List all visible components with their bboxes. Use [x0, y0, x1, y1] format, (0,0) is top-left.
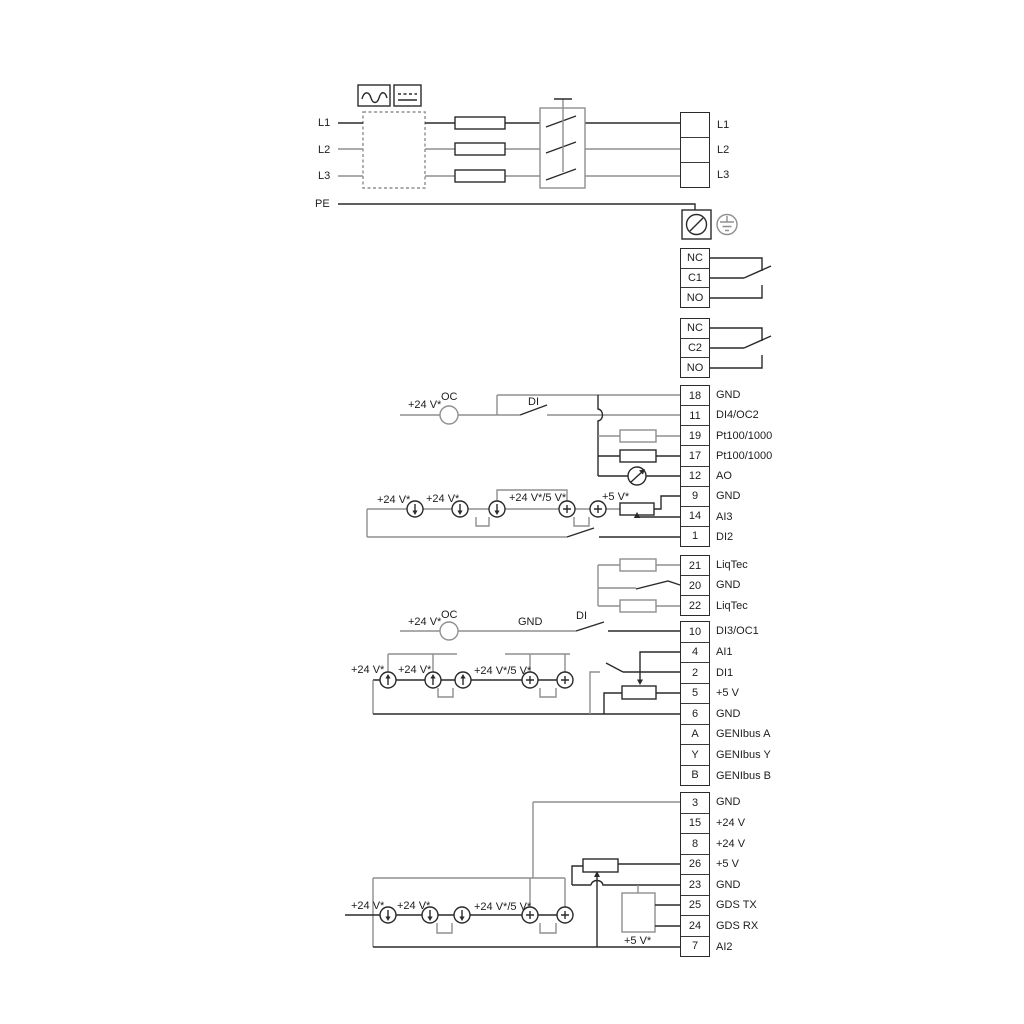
terminal-block-io2: 10 4 2 5 6 A Y B [680, 621, 710, 786]
terminal-label: L3 [717, 163, 729, 188]
terminal-label: AO [716, 466, 772, 486]
terminal-number: 4 [681, 642, 709, 663]
terminal-number: 19 [681, 425, 709, 445]
supply-label: +24 V* [351, 900, 384, 912]
terminal-number: 23 [681, 874, 709, 895]
terminal-number: NO [681, 287, 709, 307]
terminal-number: NO [681, 357, 709, 377]
terminal-number: 2 [681, 662, 709, 683]
terminal-label: GDS RX [716, 916, 758, 937]
terminal-label: Pt100/1000 [716, 446, 772, 466]
terminal-number: 6 [681, 703, 709, 724]
ground-label: GND [518, 616, 542, 628]
terminal-number: A [681, 724, 709, 745]
terminal-number: 8 [681, 833, 709, 854]
supply-label: +24 V* [397, 900, 430, 912]
terminal-number: 3 [681, 793, 709, 813]
supply-label: +24 V* [351, 664, 384, 676]
terminal-number: 12 [681, 466, 709, 486]
terminal-cell [681, 162, 709, 187]
terminal-label: GND [716, 792, 758, 813]
terminal-cell [681, 113, 709, 137]
digital-input-label: DI [576, 610, 587, 622]
cable-screw-terminal-icon [682, 210, 711, 239]
pt100-sensor [620, 430, 656, 442]
supply-label: +5 V* [624, 935, 651, 947]
terminal-number: 26 [681, 854, 709, 875]
terminal-block-io3: 3 15 8 26 23 25 24 7 [680, 792, 710, 957]
terminal-number: NC [681, 249, 709, 268]
terminal-label: L1 [717, 112, 729, 137]
terminal-number: 15 [681, 813, 709, 834]
earth-ground-icon [717, 215, 737, 235]
terminal-number: 25 [681, 895, 709, 916]
liqtec-sensor [620, 600, 656, 612]
terminal-number: 10 [681, 622, 709, 642]
potentiometer [622, 686, 656, 699]
input-label-l2: L2 [318, 144, 330, 156]
terminal-labels-io2: DI3/OC1 AI1 DI1 +5 V GND GENIbus A GENIb… [716, 621, 771, 786]
di2-switch [567, 528, 594, 537]
terminal-label: GND [716, 486, 772, 506]
terminal-number: 7 [681, 936, 709, 957]
terminal-block-mains-out [680, 112, 710, 188]
terminal-number: 14 [681, 506, 709, 526]
terminal-label: GENIbus A [716, 724, 771, 745]
liqtec-circuit [598, 559, 680, 612]
digital-input-label: DI [528, 396, 539, 408]
dc-symbol-icon [394, 85, 421, 106]
terminal-number: C2 [681, 338, 709, 358]
fuse [455, 143, 505, 155]
supply-label: +24 V* [377, 494, 410, 506]
terminal-block-relay1: NC C1 NO [680, 248, 710, 308]
open-collector-icon [440, 622, 458, 640]
terminal-labels-liqtec: LiqTec GND LiqTec [716, 555, 748, 616]
supply-label: +24 V* [408, 616, 441, 628]
terminal-block-liqtec: 21 20 22 [680, 555, 710, 616]
terminal-number: B [681, 765, 709, 786]
supply-label: +24 V*/5 V* [474, 665, 531, 677]
di1-switch [606, 663, 623, 672]
di-switch [576, 622, 604, 631]
terminal-number: 24 [681, 915, 709, 936]
fuse [455, 117, 505, 129]
terminal-label: L2 [717, 137, 729, 162]
input-label-l1: L1 [318, 117, 330, 129]
input-label-l3: L3 [318, 170, 330, 182]
supply-label: +5 V* [602, 491, 629, 503]
terminal-number: 9 [681, 486, 709, 506]
terminal-number: 17 [681, 445, 709, 465]
terminal-label: GND [716, 704, 771, 725]
terminal-label: AI3 [716, 507, 772, 527]
drive-filter-box [363, 112, 425, 188]
ai2-gds-circuit [345, 802, 680, 947]
terminal-label: Pt100/1000 [716, 426, 772, 446]
terminal-label: GDS TX [716, 895, 758, 916]
terminal-number: NC [681, 319, 709, 338]
terminal-label: LiqTec [716, 596, 748, 616]
terminal-label: AI2 [716, 936, 758, 957]
supply-label: +24 V*/5 V* [474, 901, 531, 913]
terminal-number: 21 [681, 556, 709, 575]
terminal-label: GENIbus Y [716, 745, 771, 766]
supply-label: +24 V*/5 V* [509, 492, 566, 504]
terminal-label: DI2 [716, 527, 772, 547]
open-collector-label: OC [441, 609, 458, 621]
fuse [455, 170, 505, 182]
mains-section [338, 85, 737, 239]
input-label-pe: PE [315, 198, 330, 210]
mains-switch [540, 99, 585, 188]
terminal-number: 20 [681, 575, 709, 595]
terminal-block-io1: 18 11 19 17 12 9 14 1 [680, 385, 710, 547]
terminal-label: +5 V [716, 683, 771, 704]
terminal-label: DI3/OC1 [716, 621, 771, 642]
open-collector-label: OC [441, 391, 458, 403]
supply-label: +24 V* [408, 399, 441, 411]
terminal-label: GND [716, 875, 758, 896]
terminal-label: +24 V [716, 833, 758, 854]
terminal-label: +5 V [716, 854, 758, 875]
potentiometer [583, 859, 618, 872]
terminal-number: C1 [681, 268, 709, 288]
terminal-labels-io1: GND DI4/OC2 Pt100/1000 Pt100/1000 AO GND… [716, 385, 772, 547]
terminal-label: AI1 [716, 642, 771, 663]
terminal-label: GND [716, 575, 748, 595]
terminal-block-relay2: NC C2 NO [680, 318, 710, 378]
terminal-cell [681, 137, 709, 162]
terminal-labels-io3: GND +24 V +24 V +5 V GND GDS TX GDS RX A… [716, 792, 758, 957]
terminal-label: GENIbus B [716, 765, 771, 786]
wiring-diagram-canvas [0, 0, 1024, 1024]
terminal-label: LiqTec [716, 555, 748, 575]
pt100-sensor [620, 450, 656, 462]
open-collector-icon [440, 406, 458, 424]
gds-sensor-box [622, 893, 655, 932]
terminal-number: 18 [681, 386, 709, 405]
terminal-number: Y [681, 744, 709, 765]
ai1-di1-circuit [373, 652, 680, 714]
terminal-label: +24 V [716, 813, 758, 834]
relay1-contact [710, 258, 771, 298]
terminal-number: 5 [681, 683, 709, 704]
wiring-diagram-page: L1 L2 L3 PE L1 L2 L3 NC C1 NO NC C2 NO 1… [0, 0, 1024, 1024]
supply-label: +24 V* [426, 493, 459, 505]
terminal-label: DI4/OC2 [716, 405, 772, 425]
terminal-number: 22 [681, 595, 709, 615]
terminal-number: 11 [681, 405, 709, 425]
liqtec-sensor [620, 559, 656, 571]
terminal-number: 1 [681, 526, 709, 546]
terminal-label: DI1 [716, 662, 771, 683]
relay2-contact [710, 328, 771, 368]
terminal-label: GND [716, 385, 772, 405]
di4-oc2-circuit [400, 395, 680, 485]
terminal-labels-mains-out: L1 L2 L3 [717, 112, 729, 188]
supply-label: +24 V* [398, 664, 431, 676]
meter-icon [628, 467, 646, 485]
